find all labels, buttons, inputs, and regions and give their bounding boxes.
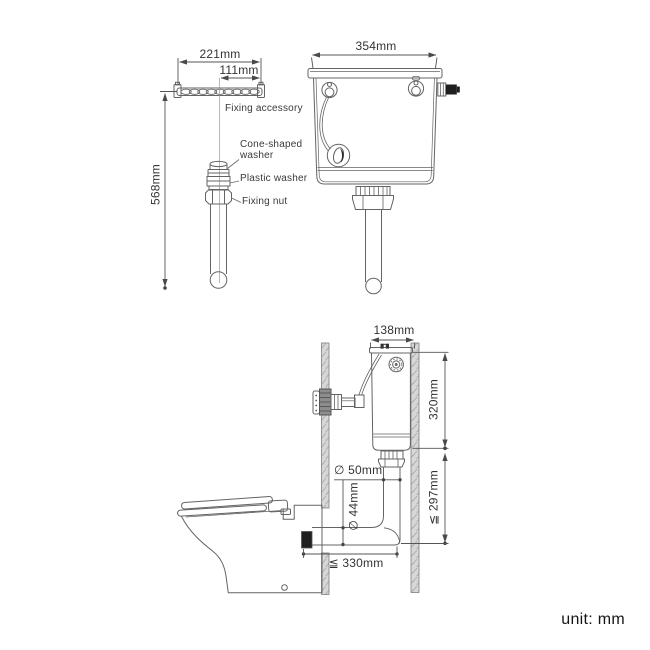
dim-accessory-outer-width: 221mm (185, 48, 255, 61)
dim-cistern-depth: 138mm (359, 324, 429, 337)
installation-side-view (177, 340, 448, 595)
label-fixing-accessory: Fixing accessory (225, 104, 303, 115)
label-cone-washer: Cone-shaped washer (240, 140, 302, 161)
technical-drawing-page: 221mm 111mm 568mm Fixing accessory Cone-… (0, 0, 650, 650)
dim-accessory-inner-width: 111mm (204, 64, 274, 77)
dim-accessory-total-height: 568mm (150, 150, 163, 220)
label-cone-washer-line2: washer (240, 151, 302, 162)
dim-cistern-width: 354mm (341, 40, 411, 53)
toilet-cistern-technical-drawing (0, 0, 650, 650)
cistern-front-view (308, 55, 460, 294)
dim-setout-max: ≦ 330mm (321, 557, 391, 570)
side-inlet-connector (438, 83, 460, 96)
label-cone-washer-line1: Cone-shaped (240, 140, 302, 151)
pan-inlet-fitting (302, 532, 313, 549)
internal-inlet-fitting (327, 144, 349, 166)
toilet-profile (177, 496, 322, 592)
dim-cistern-height: 320mm (428, 365, 441, 435)
label-fixing-nut: Fixing nut (242, 197, 287, 208)
label-plastic-washer: Plastic washer (240, 174, 307, 185)
flush-pipe-front (353, 187, 394, 294)
dim-flush-pipe-max-height: ≦ 297mm (428, 463, 441, 533)
dim-flush-pipe-inner-diameter: ∅ 44mm (348, 472, 361, 542)
unit-note: unit: mm (535, 611, 625, 629)
mounting-keyholes (322, 77, 424, 98)
water-inlet-valve (313, 389, 364, 415)
